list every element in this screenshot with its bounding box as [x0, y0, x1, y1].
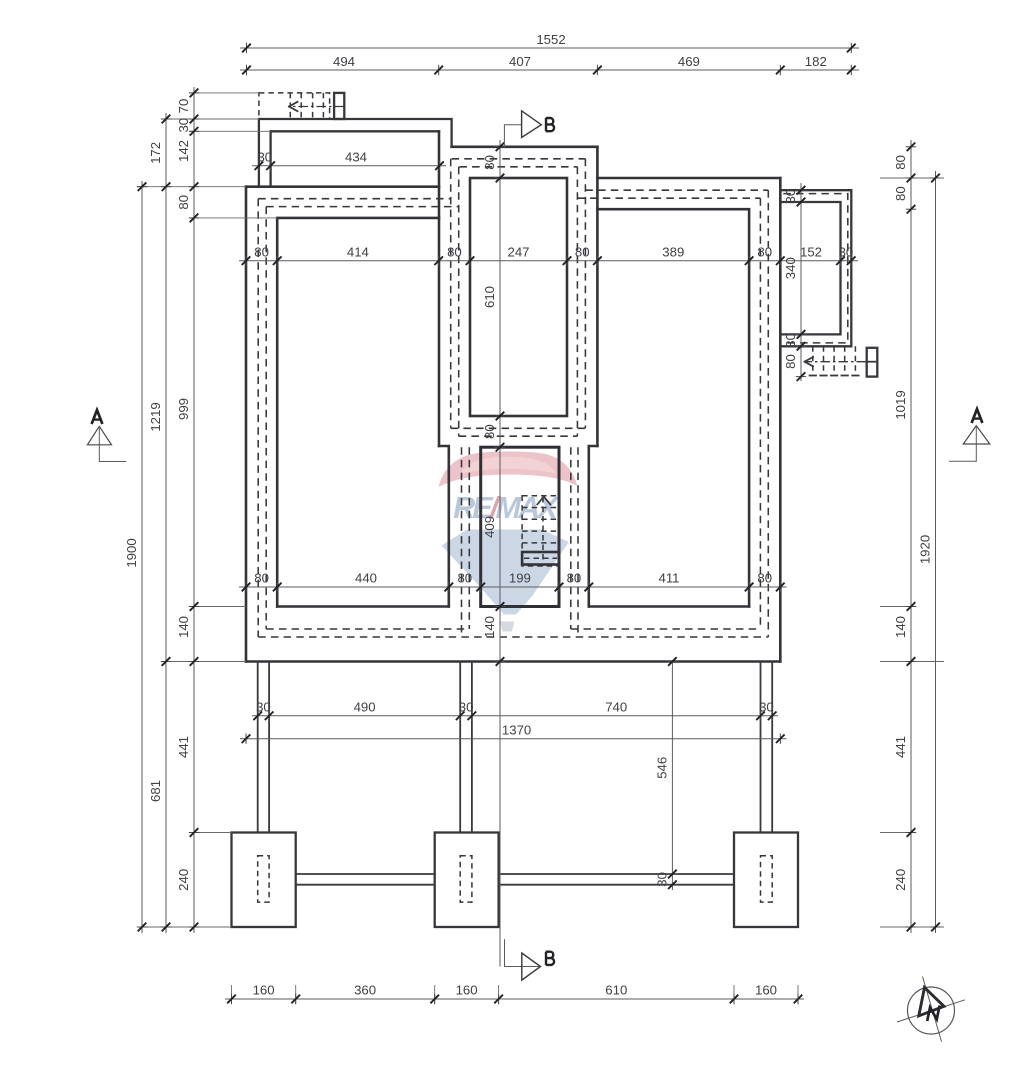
svg-text:240: 240	[176, 869, 191, 891]
svg-text:414: 414	[347, 244, 369, 259]
svg-text:1920: 1920	[918, 535, 933, 564]
svg-text:160: 160	[253, 983, 275, 998]
svg-text:240: 240	[893, 869, 908, 891]
svg-text:80: 80	[893, 186, 908, 201]
svg-text:411: 411	[658, 571, 679, 586]
svg-text:440: 440	[355, 571, 377, 586]
svg-text:247: 247	[507, 244, 529, 259]
svg-text:140: 140	[482, 616, 497, 638]
svg-text:80: 80	[482, 155, 497, 170]
svg-text:30: 30	[783, 333, 798, 348]
svg-text:546: 546	[654, 757, 669, 779]
svg-text:409: 409	[482, 516, 497, 538]
svg-text:140: 140	[893, 616, 908, 638]
svg-text:199: 199	[509, 571, 531, 586]
svg-text:160: 160	[755, 983, 777, 998]
svg-text:434: 434	[345, 149, 367, 164]
svg-text:160: 160	[456, 983, 478, 998]
svg-text:80: 80	[783, 354, 798, 369]
svg-text:80: 80	[757, 571, 772, 586]
svg-text:172: 172	[148, 142, 163, 164]
svg-text:70: 70	[176, 99, 191, 114]
svg-text:441: 441	[893, 736, 908, 758]
svg-text:469: 469	[678, 54, 700, 69]
svg-text:80: 80	[254, 571, 269, 586]
svg-text:30: 30	[459, 699, 474, 714]
svg-text:1552: 1552	[536, 32, 565, 47]
svg-text:494: 494	[333, 54, 355, 69]
svg-text:1900: 1900	[124, 538, 139, 567]
svg-text:80: 80	[757, 244, 772, 259]
svg-text:360: 360	[354, 983, 376, 998]
svg-text:610: 610	[482, 286, 497, 308]
svg-text:441: 441	[176, 736, 191, 758]
svg-text:1219: 1219	[148, 402, 163, 431]
svg-text:30: 30	[257, 149, 272, 164]
svg-text:30: 30	[783, 189, 798, 204]
svg-text:389: 389	[662, 244, 684, 259]
svg-text:140: 140	[176, 616, 191, 638]
svg-text:30: 30	[654, 872, 669, 887]
svg-text:80: 80	[482, 424, 497, 439]
svg-text:80: 80	[575, 244, 590, 259]
svg-text:30: 30	[839, 244, 854, 259]
svg-text:80: 80	[567, 571, 582, 586]
svg-text:407: 407	[509, 54, 531, 69]
svg-text:1019: 1019	[893, 390, 908, 419]
svg-text:182: 182	[805, 54, 827, 69]
svg-text:80: 80	[176, 195, 191, 210]
svg-text:80: 80	[254, 244, 269, 259]
svg-text:80: 80	[893, 155, 908, 170]
svg-text:142: 142	[176, 140, 191, 162]
svg-text:30: 30	[176, 118, 191, 133]
svg-text:80: 80	[457, 571, 472, 586]
svg-text:490: 490	[354, 699, 376, 714]
svg-text:740: 740	[605, 699, 627, 714]
svg-text:1370: 1370	[502, 722, 531, 737]
svg-text:80: 80	[447, 244, 462, 259]
svg-text:30: 30	[256, 699, 271, 714]
svg-text:610: 610	[605, 983, 627, 998]
svg-text:999: 999	[176, 398, 191, 420]
svg-text:681: 681	[148, 780, 163, 802]
svg-text:340: 340	[783, 257, 798, 279]
svg-text:30: 30	[759, 699, 774, 714]
svg-text:152: 152	[800, 244, 822, 259]
